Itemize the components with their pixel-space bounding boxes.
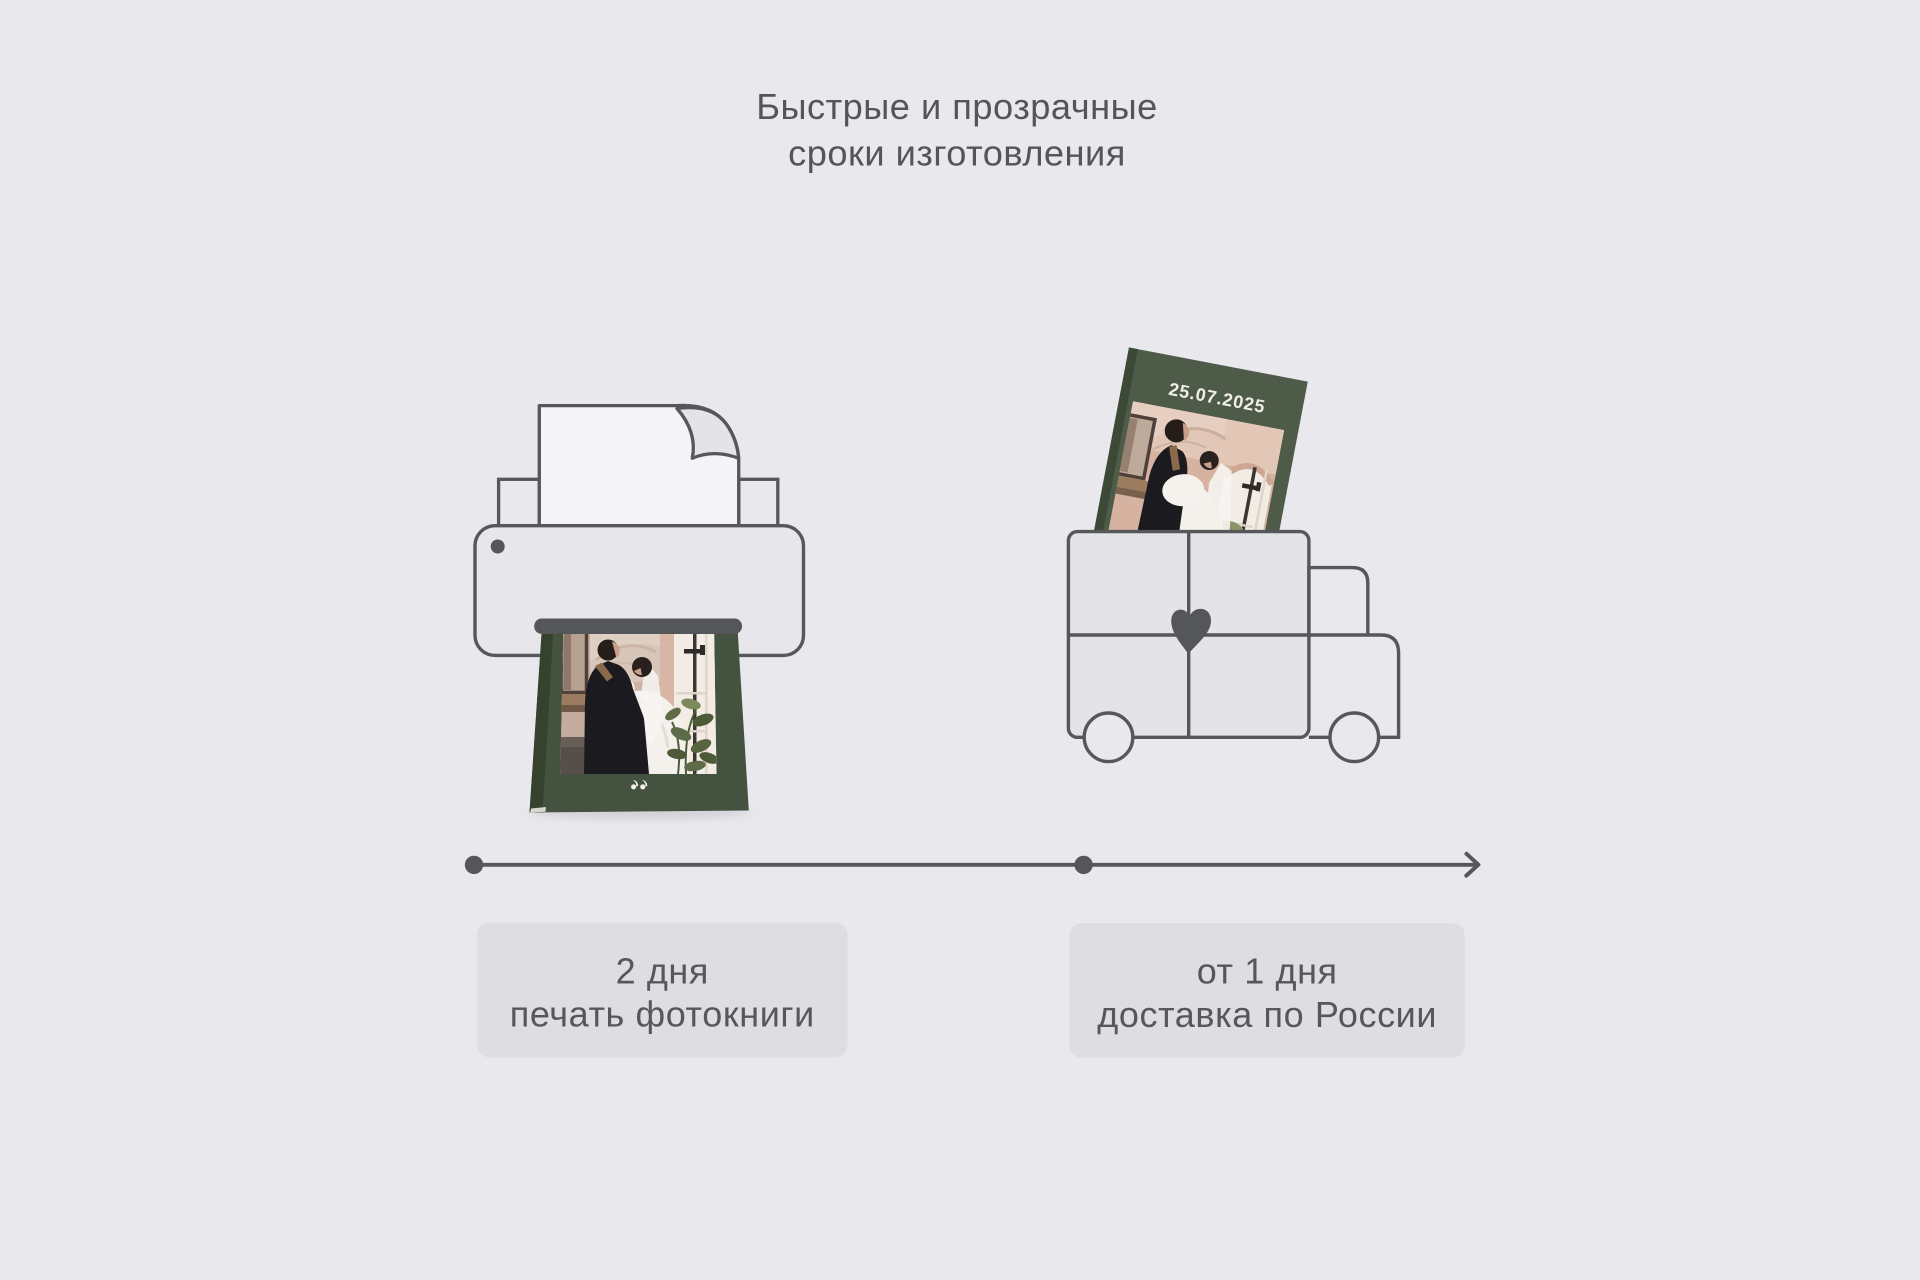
svg-text:доставка по России: доставка по России — [1097, 994, 1437, 1035]
svg-text:Быстрые и прозрачные: Быстрые и прозрачные — [756, 86, 1157, 127]
svg-text:печать фотокниги: печать фотокниги — [510, 993, 815, 1034]
svg-text:от 1 дня: от 1 дня — [1197, 950, 1338, 991]
svg-text:2 дня: 2 дня — [616, 951, 709, 992]
svg-text:сроки изготовления: сроки изготовления — [788, 133, 1126, 174]
